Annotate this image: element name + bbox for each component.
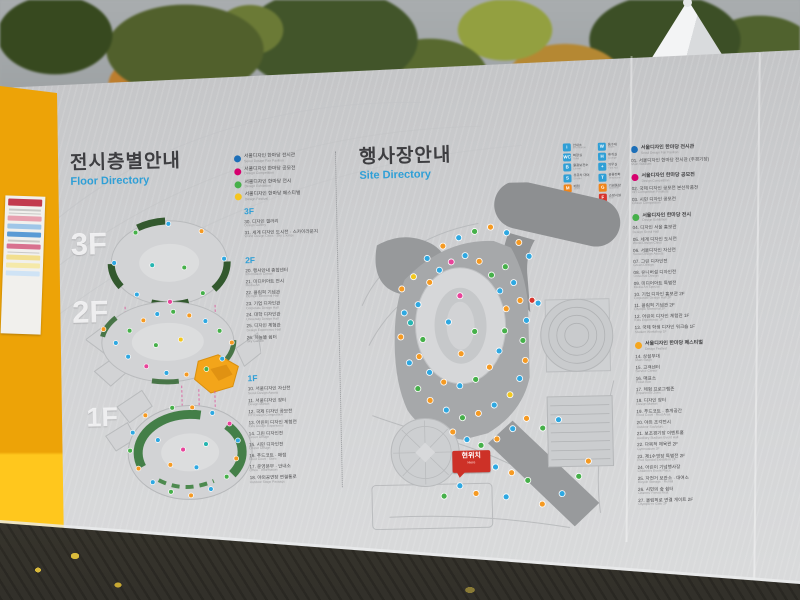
section-label-en: Design Festival — [645, 346, 703, 351]
section-label-en: Seoul Design Fair Pavilion — [641, 150, 694, 155]
map-marker — [487, 224, 493, 230]
floor-diagram-marker — [200, 291, 205, 296]
facility-item: B물품보관소Locker — [563, 163, 593, 172]
item-en: Media Art — [246, 283, 338, 289]
legend-dot — [234, 155, 241, 162]
map-marker — [420, 336, 426, 342]
item-en: Gymnasium 2F — [637, 445, 753, 451]
map-marker — [559, 491, 565, 497]
floor-diagram-marker — [234, 456, 239, 461]
item-en: Corporate Design Hall — [246, 305, 338, 311]
site-map — [358, 180, 630, 535]
map-marker — [540, 425, 546, 431]
map-marker — [502, 264, 508, 270]
floor-diagram-marker — [153, 343, 158, 348]
floor-diagram-marker — [203, 319, 208, 324]
floor-section-header: 2F — [245, 253, 337, 265]
directory-item: 21. 보조경기장 이벤트홀Auxiliary Stadium Event Ha… — [637, 429, 753, 440]
directory-item: 27. 올림픽로 연결 게이트 2FOlympic-ro Gate 2F — [638, 496, 754, 507]
directory-item: 22. 올림픽 기념관Olympic Memorial Hall — [246, 288, 338, 299]
item-en: Int'l Design Competition — [248, 412, 340, 418]
site-directory-list: 서울디자인 한마당 전시관Seoul Design Fair Pavilion0… — [631, 144, 755, 515]
floor-diagram-marker — [113, 341, 118, 346]
legend-label: 서울디자인 한마당 전시Design Exhibition — [244, 179, 291, 189]
first-aid-icon: + — [598, 163, 606, 171]
legend-label-en: Design Exhibition — [245, 184, 292, 189]
facility-label-en: Toilet — [573, 158, 582, 161]
legend-label: 서울디자인 한마당 전시관Seoul Design Fair Pavilion — [244, 153, 295, 163]
item-en: Media Art Special — [634, 284, 750, 290]
map-marker — [510, 426, 516, 432]
item-en: Service Center — [636, 368, 752, 374]
map-marker — [535, 300, 541, 306]
floor-diagram-marker — [168, 462, 173, 467]
floor-diagram-marker — [210, 411, 215, 416]
floor-section: 3F30. 디자인 갤러리Design Gallery31. 세계 디자인 도시… — [244, 204, 337, 239]
item-en: Office · Information — [250, 468, 342, 474]
item-en: Corporate Design Hall 2F — [634, 295, 750, 301]
map-marker — [529, 297, 535, 303]
map-marker — [457, 383, 463, 389]
site-directory-title: 행사장안내 Site Directory — [359, 146, 452, 182]
map-marker — [516, 239, 522, 245]
facility-label-en: Water — [608, 147, 617, 150]
map-marker — [472, 228, 478, 234]
floor-diagram-marker — [171, 309, 176, 314]
floor-diagram-marker — [136, 466, 141, 471]
directory-item: 19. 푸드코트 · 휴게공간Food Court · Rest Area — [636, 407, 752, 418]
item-en: Design Seoul Hall — [633, 228, 749, 234]
map-marker — [424, 255, 430, 261]
map-marker — [488, 272, 494, 278]
item-en: Universal Design — [634, 273, 750, 279]
directory-item: 10. 서울디자인 자산전Seoul Design Assets — [248, 385, 340, 396]
facility-label: 휴게실Lounge — [608, 153, 617, 160]
directory-item: 07. 그린 디자인전Green Design — [633, 256, 749, 267]
legend-dot — [234, 181, 241, 188]
map-marker — [426, 369, 432, 375]
legend-label-en: Seoul Design Fair Pavilion — [244, 159, 295, 164]
poster-stripe — [7, 223, 41, 229]
poster-stripe — [6, 262, 40, 268]
section-dot — [632, 214, 639, 221]
site-section-header: 서울디자인 한마당 공모전Design Competition — [631, 172, 747, 183]
map-marker — [503, 306, 509, 312]
section-label-en: Design Exhibition — [642, 218, 691, 223]
floor-legend: 서울디자인 한마당 전시관Seoul Design Fair Pavilion서… — [234, 152, 335, 205]
floor-diagram-marker — [178, 337, 183, 342]
directory-item: 26. 시민의 숲 쉼터Citizens' Forest Rest — [638, 484, 754, 495]
floor-diagram-marker — [224, 474, 229, 479]
toilet-icon: WC — [563, 154, 571, 162]
floor-directory-title-en: Floor Directory — [70, 173, 181, 187]
map-marker — [415, 302, 421, 308]
poster-stripe — [7, 243, 41, 249]
poster-stripe — [7, 231, 41, 237]
floor-section: 1F10. 서울디자인 자산전Seoul Design Assets11. 서울… — [248, 372, 342, 485]
directory-item: 20. 야외 조각전시Outdoor Sculpture — [637, 418, 753, 429]
directory-item: 22. 다목적 체육관 2FGymnasium 2F — [637, 440, 753, 451]
floor-diagram-marker — [189, 493, 194, 498]
floor-diagram-marker — [181, 447, 186, 452]
floor-diagram-marker — [169, 489, 174, 494]
item-en: Auxiliary Stadium Event Hall — [637, 434, 753, 440]
legend-item: 서울디자인 한마당 전시Design Exhibition — [234, 178, 334, 189]
floor-diagram-marker — [144, 364, 149, 369]
floor-diagram — [83, 208, 264, 512]
floor-diagram-marker — [194, 465, 199, 470]
floor-section-header: 1F — [248, 372, 340, 384]
facility-label-en: Lounge — [608, 157, 617, 160]
section-dot — [635, 342, 642, 349]
map-marker — [502, 328, 508, 334]
locker-icon: B — [563, 164, 571, 172]
map-marker — [511, 280, 517, 286]
directory-item: 24. 어린이 기념행사장Children's Event Place — [638, 462, 754, 473]
floor-diagram-marker — [166, 221, 171, 226]
item-en: Information Center — [245, 272, 337, 278]
legend-dot — [234, 168, 241, 175]
section-label-en: Design Competition — [642, 179, 695, 184]
item-en: University Design Hall — [246, 316, 338, 322]
map-marker — [517, 297, 523, 303]
map-marker — [448, 259, 454, 265]
floor-diagram-marker — [112, 261, 117, 266]
directory-item: 16. 푸드코트 · 매점Food Court · Store — [249, 451, 341, 462]
directory-item: 24. 대학 디자인관University Design Hall — [246, 311, 338, 322]
map-marker — [526, 253, 532, 259]
floor-diagram-marker — [150, 263, 155, 268]
floor-diagram-marker — [217, 328, 222, 333]
directory-item: 26. 하늘뜰 쉼터Sky Garden — [247, 333, 339, 344]
site-section: 서울디자인 한마당 전시Design Exhibition04. 디자인 서울 … — [632, 212, 750, 335]
map-marker — [459, 415, 465, 421]
facility-label: 물품보관소Locker — [573, 164, 588, 171]
floor-diagram-marker — [150, 480, 155, 485]
facility-label: 의무실First Aid — [608, 164, 618, 171]
directory-item: 16. 매표소Ticket Box — [636, 374, 752, 385]
directory-item: 13. 어린이 디자인 체험전Kids Design Experience — [248, 418, 340, 429]
poster-stripe — [8, 198, 42, 206]
directory-item: 25. 자전거 보관소 · 대여소Bicycle Storage · Renta… — [638, 473, 754, 484]
information-icon: i — [563, 143, 571, 151]
item-en: Sky Garden — [247, 338, 339, 344]
floor-diagram-marker — [168, 299, 173, 304]
map-marker — [440, 243, 446, 249]
directory-sign-board: 전시층별안내 Floor Directory 서울디자인 한마당 전시관Seou… — [0, 0, 800, 600]
legend-label: 서울디자인 한마당 공모전Design Competition — [244, 166, 295, 176]
facility-item: H휴게실Lounge — [598, 152, 628, 161]
floor-diagram-marker — [155, 312, 160, 317]
map-marker — [456, 235, 462, 241]
facility-label: 공중전화Telephone — [608, 174, 620, 181]
map-marker — [457, 293, 463, 299]
notice-poster — [1, 195, 46, 334]
directory-item: 15. 고객센터Service Center — [635, 362, 751, 373]
poster-stripe — [6, 254, 40, 260]
legend-label-en: Design Competition — [244, 171, 295, 176]
site-section: 서울디자인 한마당 전시관Seoul Design Fair Pavilion0… — [631, 144, 747, 167]
legend-label: 서울디자인 한마당 페스티벌Design Festival — [245, 191, 301, 201]
item-en: Seoul Design Assets — [633, 251, 749, 257]
you-are-here-en: Here — [452, 461, 490, 465]
poster-stripe — [8, 215, 42, 221]
item-en: Green Design — [249, 434, 341, 440]
directory-item: 08. 유니버설 디자인전Universal Design — [633, 268, 749, 279]
map-marker — [509, 470, 515, 476]
floor-diagram-marker — [227, 421, 232, 426]
floor-list: 3F30. 디자인 갤러리Design Gallery31. 세계 디자인 도시… — [244, 204, 342, 500]
floor-diagram-marker — [170, 405, 175, 410]
map-marker — [496, 348, 502, 354]
directory-item: 25. 디자인 체험관Design Experience Hall — [246, 322, 338, 333]
floor-diagram-marker — [126, 354, 131, 359]
item-en: World Design Cities · Sky Lounge — [245, 234, 337, 240]
directory-item: 21. 미디어아트 전시Media Art — [246, 277, 338, 288]
map-marker — [522, 357, 528, 363]
section-dot — [631, 146, 638, 153]
item-en: Olympic-ro Gate 2F — [638, 501, 754, 507]
legend-item: 서울디자인 한마당 공모전Design Competition — [234, 165, 334, 176]
floor-diagram-marker — [220, 356, 225, 361]
floor-diagram-marker — [155, 438, 160, 443]
item-en: Olympic Memorial Hall — [246, 294, 338, 300]
map-marker — [486, 364, 492, 370]
floor-diagram-marker — [199, 229, 204, 234]
floor-diagram-marker — [127, 328, 132, 333]
map-marker — [398, 334, 404, 340]
map-marker — [497, 288, 503, 294]
directory-item: 18. 야외공연장 연결통로Outdoor Stage Passage — [250, 473, 342, 484]
map-marker — [464, 437, 470, 443]
map-marker — [443, 407, 449, 413]
map-marker — [576, 473, 582, 479]
directory-item: 23. 제1수영장 특별전 2FPool Special Exhibition … — [637, 451, 753, 462]
floor-directory-title: 전시층별안내 Floor Directory — [70, 152, 182, 188]
legend-dot — [235, 194, 242, 201]
item-en: Experience Zone — [636, 390, 752, 396]
item-en: World Design Cities — [633, 240, 749, 246]
poster-text-line — [9, 212, 41, 215]
map-marker — [472, 328, 478, 334]
item-en: Citizens' Forest Rest — [638, 490, 754, 496]
directory-item: 09. 미디어아트 특별전Media Art Special — [634, 279, 750, 290]
item-en: Olympic Memorial 2F — [634, 306, 750, 312]
poster-text-line — [7, 251, 39, 254]
map-marker — [491, 402, 497, 408]
water-icon: W — [598, 143, 606, 151]
floor-section-header: 3F — [244, 204, 336, 216]
directory-item: 20. 행사안내 종합센터Information Center — [245, 266, 337, 277]
floor-diagram-marker — [133, 230, 138, 235]
directory-item: 06. 서울디자인 자산전Seoul Design Assets — [633, 245, 749, 256]
item-en: Pool Special Exhibition 2F — [637, 456, 753, 462]
item-en: Seoul Design Assets — [248, 390, 340, 396]
map-marker — [494, 436, 500, 442]
poster-text-line — [9, 208, 41, 211]
item-en: Outdoor Sculpture — [637, 423, 753, 429]
map-marker — [492, 464, 498, 470]
map-marker — [473, 490, 479, 496]
floor-diagram-marker — [130, 430, 135, 435]
item-en: Green Design — [633, 262, 749, 268]
map-marker — [462, 253, 468, 259]
floor-diagram-marker — [134, 292, 139, 297]
site-section: 서울디자인 한마당 공모전Design Competition02. 국제 디자… — [631, 172, 748, 206]
facility-label: 화장실Toilet — [573, 154, 582, 161]
directory-item: 12. 어린이 디자인 체험관 1FKids Experience 1F — [634, 312, 750, 323]
directory-item: 18. 디자인 장터Design Market — [636, 396, 752, 407]
site-section-header: 서울디자인 한마당 페스티벌Design Festival — [635, 340, 751, 351]
map-marker — [458, 351, 464, 357]
item-en: Bicycle Storage · Rental — [638, 479, 754, 485]
facility-item: W음수대Water — [598, 142, 628, 151]
floor-diagram-marker — [184, 372, 189, 377]
map-marker — [555, 417, 561, 423]
item-en: Design Gallery — [244, 223, 336, 229]
site-section: 서울디자인 한마당 페스티벌Design Festival14. 상설무대Mai… — [635, 340, 754, 507]
map-marker — [525, 477, 531, 483]
directory-item: 14. 상설무대Main Stage — [635, 351, 751, 362]
directory-item: 14. 그린 디자인전Green Design — [249, 429, 341, 440]
map-marker — [503, 494, 509, 500]
floor-diagram-marker — [204, 367, 209, 372]
floor-diagram-marker — [128, 448, 133, 453]
facility-label-en: Locker — [573, 168, 588, 171]
directory-item: 05. 세계 디자인 도시전World Design Cities — [633, 234, 749, 245]
map-marker — [473, 376, 479, 382]
item-en: Design Market — [248, 401, 340, 407]
map-marker — [445, 319, 451, 325]
item-en: Citizen Competition — [632, 200, 748, 206]
map-marker — [406, 360, 412, 366]
item-en: Citizen Design — [249, 445, 341, 451]
map-marker — [399, 286, 405, 292]
directory-item: 11. 서울디자인 장터Design Market — [248, 396, 340, 407]
floor-directory-title-ko: 전시층별안내 — [70, 152, 181, 174]
floor-diagram-marker — [164, 370, 169, 375]
map-marker — [523, 317, 529, 323]
facility-item: +의무실First Aid — [598, 163, 628, 172]
legend-item: 서울디자인 한마당 페스티벌Design Festival — [235, 191, 335, 202]
item-en: Design Market — [636, 401, 752, 407]
poster-stripe — [6, 270, 40, 276]
map-marker — [523, 415, 529, 421]
site-section-header: 서울디자인 한마당 전시관Seoul Design Fair Pavilion — [631, 144, 747, 155]
map-marker — [441, 493, 447, 499]
facility-label-en: First Aid — [608, 167, 617, 170]
map-marker — [450, 429, 456, 435]
directory-item: 31. 세계 디자인 도시전 · 스카이라운지World Design Citi… — [245, 228, 337, 239]
item-en: Kids Experience 1F — [634, 317, 750, 323]
directory-item: 17. 체험 프로그램존Experience Zone — [636, 385, 752, 396]
directory-item: 11. 올림픽 기념관 2FOlympic Memorial 2F — [634, 301, 750, 312]
facility-label-en: Information — [573, 148, 586, 151]
directory-item: 17. 운영본부 · 안내소Office · Information — [249, 462, 341, 473]
facility-item: WC화장실Toilet — [563, 153, 593, 162]
site-directory-title-en: Site Directory — [359, 168, 452, 182]
you-are-here-marker: 현위치 Here — [452, 450, 490, 473]
directory-item: 12. 국제 디자인 공모전Int'l Design Competition — [248, 407, 340, 418]
map-marker — [517, 375, 523, 381]
map-marker — [427, 279, 433, 285]
map-marker — [416, 354, 422, 360]
map-marker — [415, 386, 421, 392]
item-en: Food Court · Store — [249, 457, 341, 463]
legend-item: 서울디자인 한마당 전시관Seoul Design Fair Pavilion — [234, 152, 334, 163]
directory-item: 01. 서울디자인 한마당 전시관 (주경기장)Main Stadium — [631, 155, 747, 166]
map-marker — [539, 501, 545, 507]
item-en: Children's Event Place — [638, 468, 754, 474]
site-section-header: 서울디자인 한마당 전시Design Exhibition — [632, 212, 748, 223]
map-marker — [401, 310, 407, 316]
facility-item: i안내소Information — [563, 143, 593, 152]
directory-item: 03. 시민 디자인 공모전Citizen Competition — [632, 195, 748, 206]
floor-section: 2F20. 행사안내 종합센터Information Center21. 미디어… — [245, 253, 339, 343]
site-directory-title-ko: 행사장안내 — [359, 146, 452, 168]
map-marker — [410, 274, 416, 280]
facility-label: 안내소Information — [573, 144, 586, 151]
floor-diagram-marker — [204, 442, 209, 447]
map-marker — [407, 320, 413, 326]
section-dot — [631, 174, 638, 181]
floor-diagram-marker — [222, 256, 227, 261]
floor-diagram-marker — [101, 327, 106, 332]
legend-label-en: Design Festival — [245, 197, 301, 202]
map-marker — [585, 458, 591, 464]
floor-diagram-marker — [235, 438, 240, 443]
map-marker — [427, 397, 433, 403]
directory-item: 13. 국제 학생 디자인 워크숍 1FStudent Workshop 1F — [635, 323, 751, 334]
directory-item: 02. 국제 디자인 공모전 본선작품전Int'l Competition Fi… — [632, 184, 748, 195]
floor-diagram-marker — [187, 313, 192, 318]
directory-item: 04. 디자인 서울 홍보관Design Seoul Hall — [632, 223, 748, 234]
floor-diagram-marker — [190, 405, 195, 410]
map-marker — [475, 410, 481, 416]
facility-label: 음수대Water — [608, 143, 617, 150]
map-marker — [478, 442, 484, 448]
floor-diagram-marker — [182, 265, 187, 270]
map-marker — [476, 258, 482, 264]
map-marker — [436, 267, 442, 273]
floor-diagram-marker — [141, 318, 146, 323]
map-marker — [507, 392, 513, 398]
item-en: Design Experience Hall — [247, 327, 339, 333]
floor-diagram-marker — [229, 340, 234, 345]
map-marker — [441, 379, 447, 385]
lounge-icon: H — [598, 153, 606, 161]
poster-text-line — [8, 239, 40, 242]
directory-item: 10. 기업 디자인 홍보관 2FCorporate Design Hall 2… — [634, 290, 750, 301]
floor-diagram-marker — [143, 413, 148, 418]
map-marker — [520, 337, 526, 343]
photo-scene: 전시층별안내 Floor Directory 서울디자인 한마당 전시관Seou… — [0, 0, 800, 600]
directory-item: 30. 디자인 갤러리Design Gallery — [244, 217, 336, 228]
map-marker — [504, 230, 510, 236]
directory-item: 15. 시민 디자인전Citizen Design — [249, 440, 341, 451]
floor-diagram-marker — [208, 487, 213, 492]
directory-item: 23. 기업 디자인관Corporate Design Hall — [246, 300, 338, 311]
item-en: Food Court · Rest Area — [636, 412, 752, 418]
